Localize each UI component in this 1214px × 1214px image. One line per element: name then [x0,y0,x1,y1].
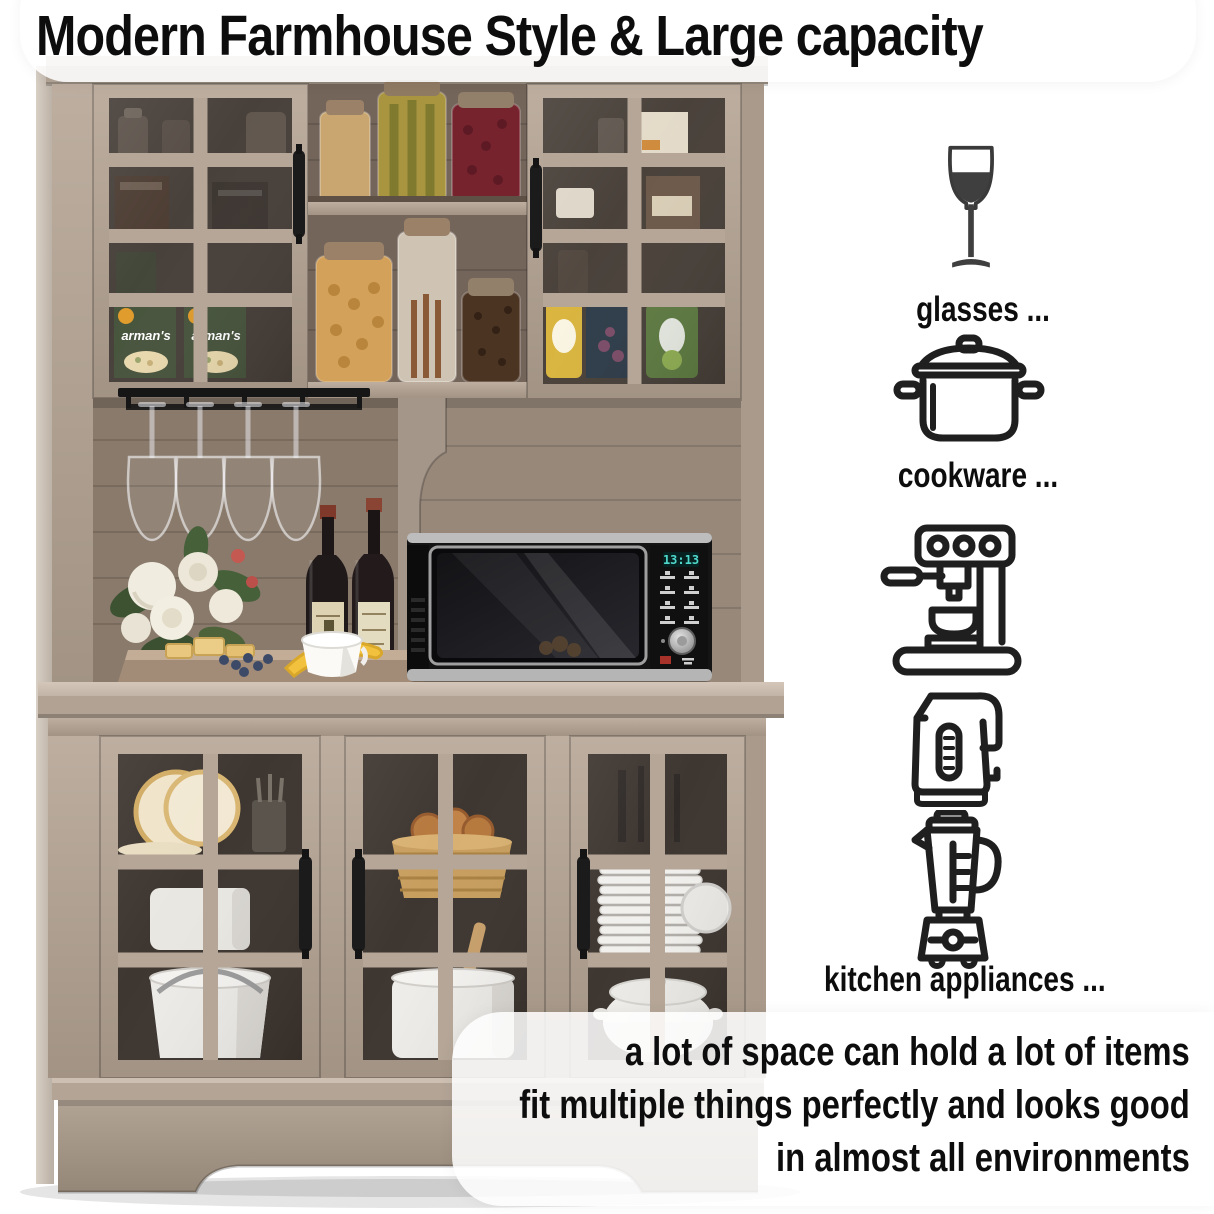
door-handle [352,849,365,959]
blender-icon [893,810,1021,976]
electric-kettle-icon [903,686,1013,812]
door-handle [530,158,542,258]
center-jar-shelves [308,80,527,398]
caption-line-2: fit multiple things perfectly and looks … [519,1079,1190,1132]
caption-line-1: a lot of space can hold a lot of items [519,1026,1190,1079]
product-marketing-image: arman's arman's [0,0,1214,1214]
page-title: Modern Farmhouse Style & Large capacity [36,6,983,66]
middle-display-zone: 13:13 [93,388,741,690]
upper-right-door [527,84,741,400]
door-handle [293,144,305,244]
microwave-clock: 13:13 [663,553,699,567]
door-handle [299,849,312,959]
caption-panel: a lot of space can hold a lot of items f… [452,1012,1214,1206]
caption-line-3: in almost all environments [519,1132,1190,1185]
lower-door-1 [100,736,320,1078]
microwave: 13:13 [407,533,712,690]
espresso-machine-icon [880,522,1032,682]
title-band: Modern Farmhouse Style & Large capacity [20,0,1196,82]
feature-label-kitchen-appliances: kitchen appliances ... [824,960,1096,1000]
wine-glass-icon [938,138,1004,280]
door-handle [577,849,590,959]
feature-label-cookware: cookware ... [882,456,1074,496]
cooking-pot-icon [893,334,1045,452]
feature-label-glasses: glasses ... [891,290,1075,330]
coffee-cup [302,632,365,677]
upper-left-door: arman's arman's [93,84,308,398]
